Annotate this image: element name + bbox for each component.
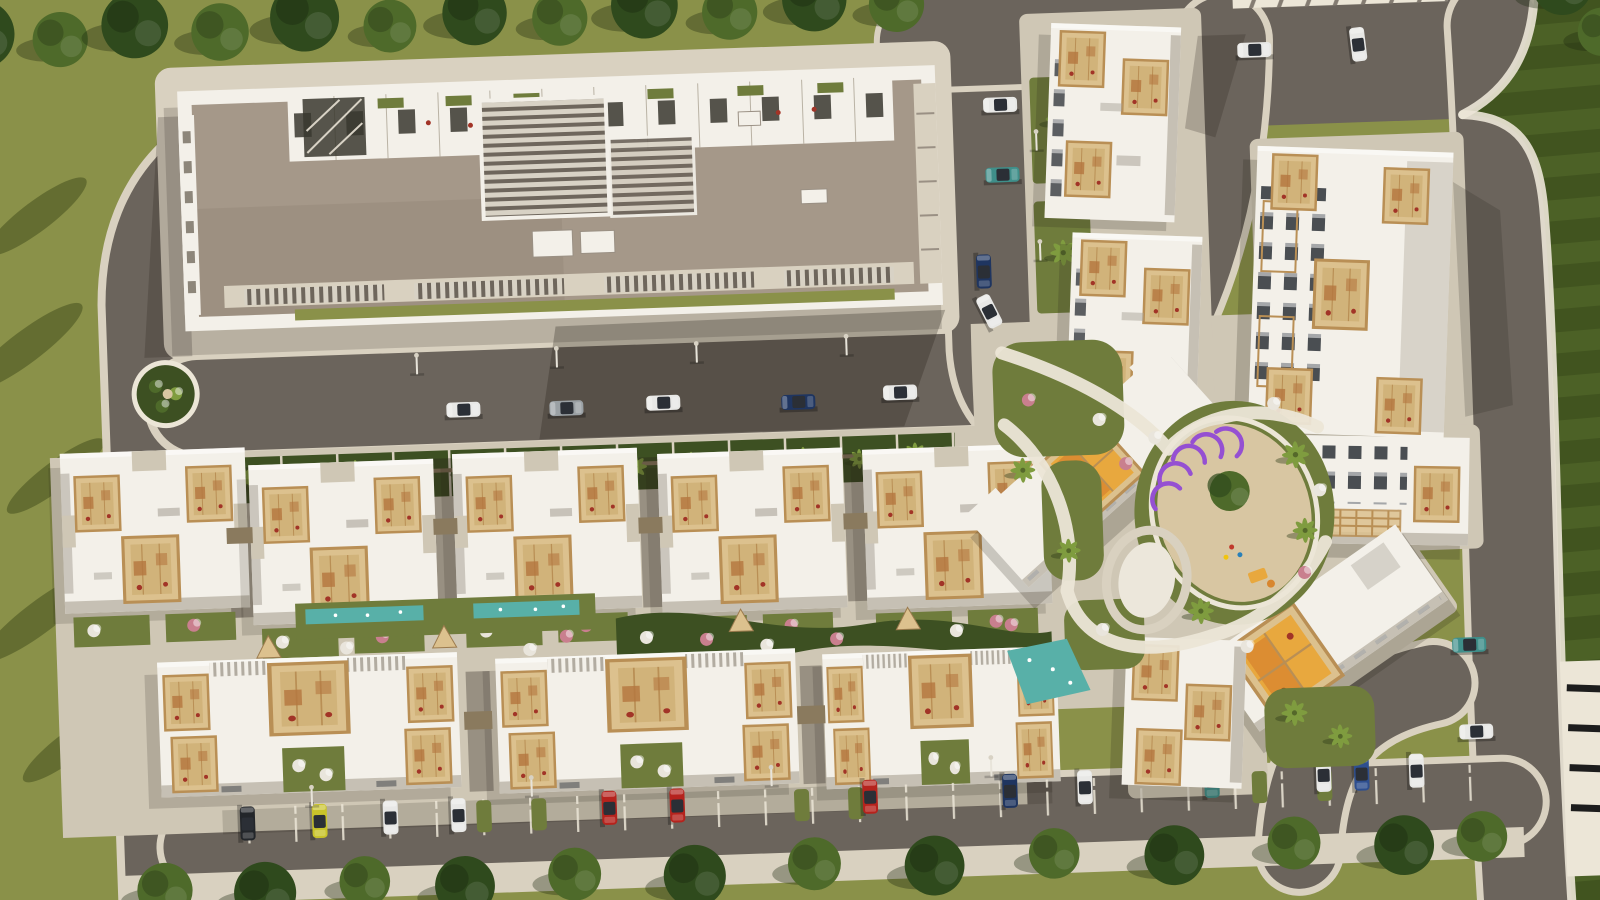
commercial-building [163,65,944,356]
aerial-site-render [0,0,1600,900]
site-plan-canvas [0,0,1600,900]
southeast-lawn [1264,685,1377,769]
